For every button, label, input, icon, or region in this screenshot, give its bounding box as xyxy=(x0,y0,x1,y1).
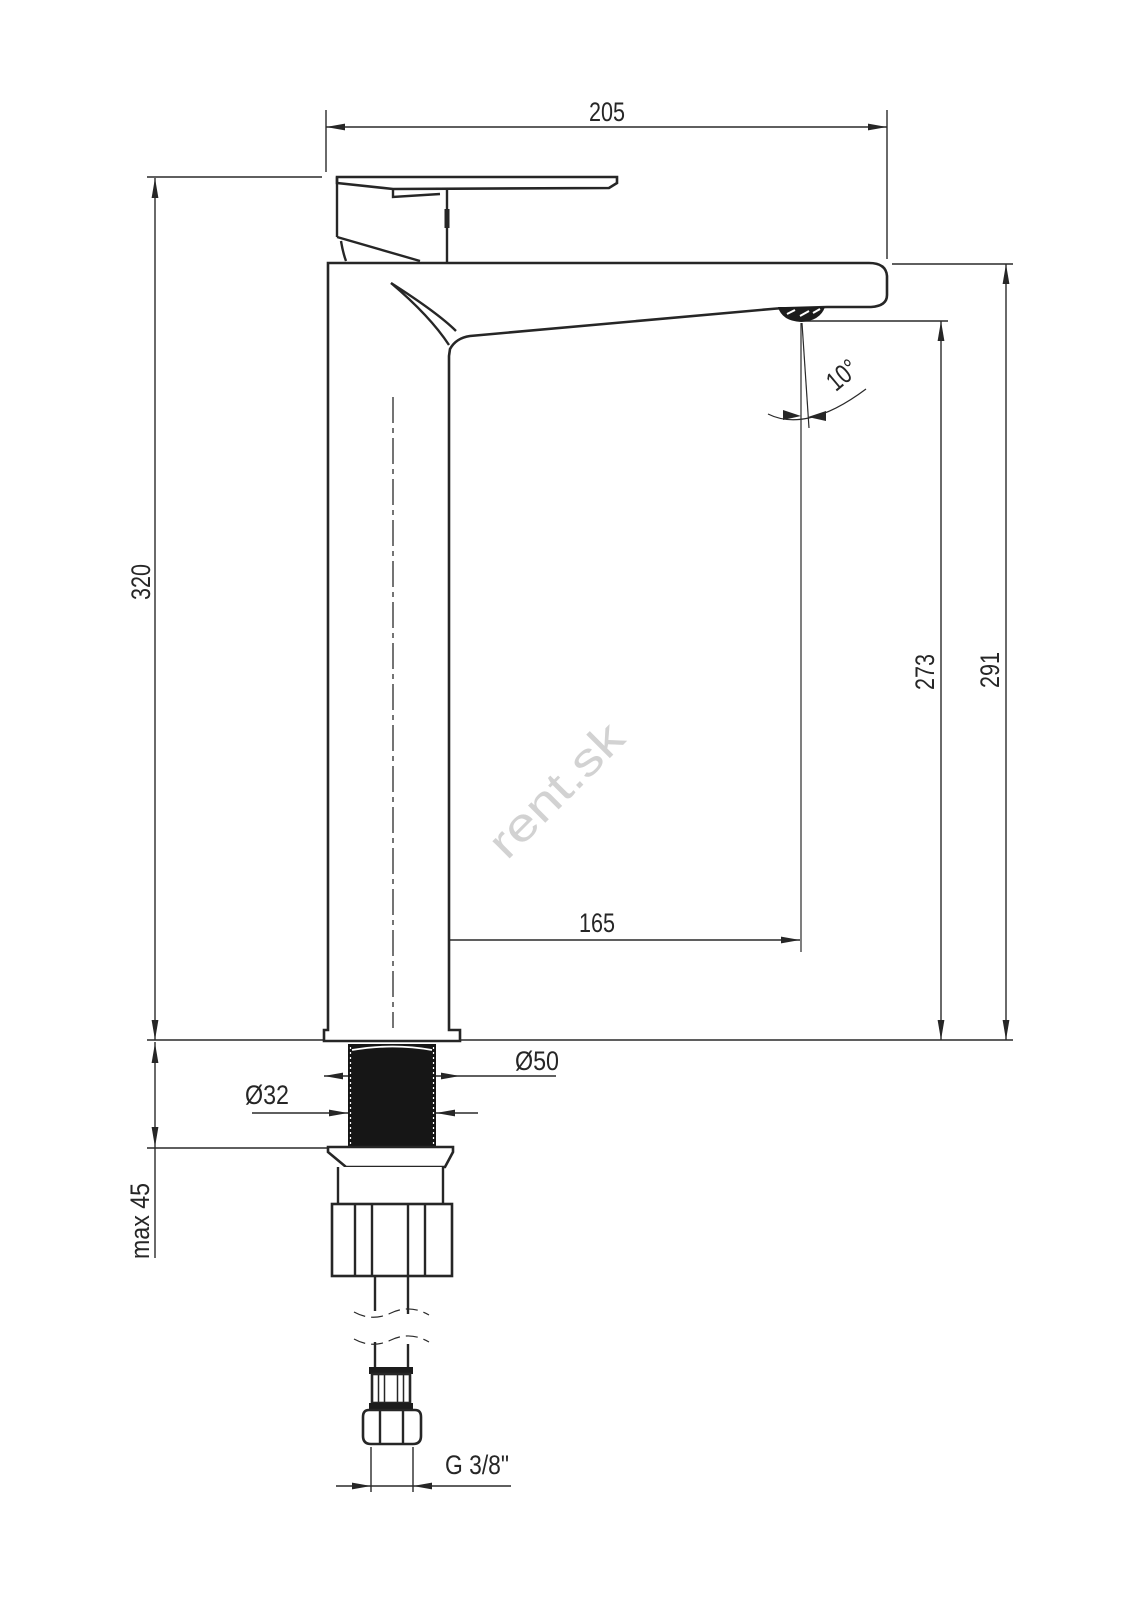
dim-d50-label: Ø50 xyxy=(515,1046,559,1076)
hose-fitting-body xyxy=(372,1374,410,1403)
dim-max45-label: max 45 xyxy=(125,1183,155,1259)
watermark-text: rent.sk xyxy=(477,710,635,868)
handle-block-front-curve xyxy=(341,241,346,261)
hose-break-lower xyxy=(354,1336,429,1344)
supply-hose-upper xyxy=(375,1276,408,1314)
dim-d32-label: Ø32 xyxy=(245,1080,289,1110)
mounting-flange xyxy=(328,1147,453,1167)
faucet-outline xyxy=(324,177,887,1444)
hose-collar-lower xyxy=(369,1403,413,1409)
dim-thread-label: G 3/8" xyxy=(445,1450,509,1480)
dim-291-label: 291 xyxy=(975,652,1005,688)
handle-pin-detail xyxy=(445,209,450,228)
outlet-angle-line xyxy=(802,323,809,428)
tube-fill xyxy=(339,1167,442,1204)
hose-break-upper xyxy=(354,1309,429,1317)
handle-block-slant xyxy=(337,237,420,261)
dim-320-label: 320 xyxy=(126,564,156,600)
dim-273-label: 273 xyxy=(910,654,940,690)
dim-angle-label: 10° xyxy=(820,353,864,397)
faucet-dimension-drawing: rent.sk xyxy=(0,0,1131,1600)
technical-drawing-sheet: rent.sk xyxy=(0,0,1131,1600)
threaded-shank xyxy=(348,1044,436,1147)
hose-hex-nut xyxy=(363,1410,421,1444)
supply-hose-lower xyxy=(375,1342,408,1368)
mounting-nut xyxy=(332,1204,452,1276)
dim-205-label: 205 xyxy=(589,97,625,127)
handle-lever xyxy=(337,177,617,189)
dim-165-label: 165 xyxy=(579,908,615,938)
